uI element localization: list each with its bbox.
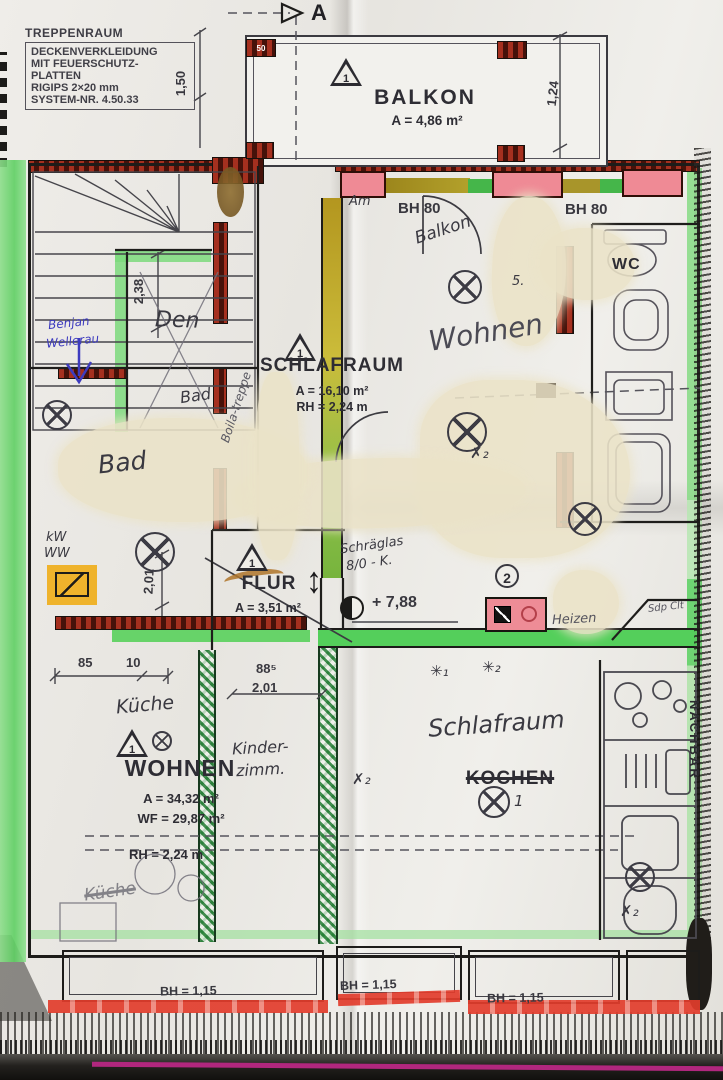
hand-asterisk-2: ✳₂ (482, 658, 501, 676)
crossed-circle-symbol (568, 502, 602, 536)
bottom-window-frame-4 (626, 950, 700, 1002)
room-label-kochen: KOCHEN (452, 768, 568, 790)
balcony-corner-number: 50 (257, 44, 266, 53)
circle-2-symbol: 2 (495, 564, 519, 588)
room-area-schlafraum: A = 16,10 m² (246, 384, 418, 398)
hand-kw: kW (46, 530, 66, 545)
room-rh-wohnen: RH = 2,24 m (96, 847, 236, 862)
level-value: + 7,88 (372, 594, 417, 612)
wall-hatch-mid-left (55, 616, 307, 630)
window-top-3 (622, 169, 683, 197)
partition-wall-kinder-right (318, 648, 338, 944)
kitchen-appliances-drawing (600, 670, 700, 942)
sill-green-2 (600, 179, 622, 193)
hand-heizen: Heizen (552, 611, 597, 628)
meter-box-symbol (55, 572, 89, 597)
room-rh-schlafraum: RH = 2,24 m (246, 400, 418, 414)
crossed-circle-symbol (478, 786, 510, 818)
dim-124: 1,24 (544, 80, 562, 107)
crossed-circle-symbol (42, 400, 72, 430)
spec-note-line: MIT FEUERSCHUTZ- (31, 58, 189, 70)
hand-am: Am (349, 194, 371, 209)
updown-arrow-symbol: ↕ (306, 559, 322, 602)
dim-10: 10 (126, 655, 140, 670)
sill-olive-1 (386, 178, 470, 193)
sill-olive-2 (563, 179, 601, 193)
dim-885: 88⁵ (256, 661, 277, 676)
hand-mark-one: 1 (514, 792, 524, 810)
triangle-number: 1 (236, 558, 268, 570)
room-label-balkon: BALKON (345, 86, 505, 110)
room-label-schlafraum: SCHLAFRAUM (246, 355, 418, 377)
torn-edge-left (0, 52, 7, 167)
neighbor-label-vertical: NACHBAR (687, 700, 702, 780)
heater-square-icon (494, 606, 511, 623)
hand-x2-c: ✗₂ (620, 902, 639, 920)
triangle-symbol: 1 (116, 729, 148, 757)
room-area-wohnen: A = 34,32 m² (106, 791, 256, 806)
crossed-circle-symbol (448, 270, 482, 304)
hand-x2-b: ✗₂ (352, 770, 371, 788)
dim-bh115-2: BH = 1,15 (340, 977, 397, 993)
spec-note-title: TREPPENRAUM (25, 26, 195, 40)
dim-bh115-1: BH = 1,15 (160, 984, 217, 999)
dim-85: 85 (78, 655, 92, 670)
crossed-circle-symbol (135, 532, 175, 572)
level-marker-symbol (340, 596, 364, 620)
crossed-circle-symbol (625, 862, 655, 892)
triangle-symbol: 1 (236, 543, 268, 571)
dim-238: 2,38 (131, 279, 146, 304)
crossed-circle-symbol (152, 731, 172, 751)
room-label-flur: FLUR (226, 573, 312, 595)
hand-mark-five: 5. (512, 274, 524, 289)
spec-note-box: DECKENVERKLEIDUNG MIT FEUERSCHUTZ- PLATT… (25, 42, 195, 110)
hand-kinderzimmer-1: Kinder- (232, 737, 289, 759)
triangle-symbol: 1 (330, 58, 362, 86)
room-label-wohnen: WOHNEN (102, 755, 258, 782)
hand-asterisk-1: ✳₁ (430, 662, 449, 680)
hand-bad-big: Bad (97, 446, 148, 480)
spec-note: TREPPENRAUM DECKENVERKLEIDUNG MIT FEUERS… (25, 26, 195, 110)
room-wf-wohnen: WF = 29,87 m² (106, 811, 256, 826)
dim-201-vertical: 2,01 (141, 568, 157, 594)
dim-bh115-3: BH = 1,15 (487, 991, 544, 1006)
hand-den: Den (155, 307, 200, 334)
stain-brown (217, 167, 244, 217)
triangle-number: 1 (330, 73, 362, 85)
hand-ww: WW (44, 546, 70, 561)
circle-2-number: 2 (503, 570, 511, 586)
heater-circle-icon (521, 606, 537, 622)
spec-note-line: DECKENVERKLEIDUNG (31, 46, 189, 58)
spec-note-line: RIGIPS 2×20 mm (31, 82, 189, 94)
balcony-corner-tl: 50 (246, 39, 276, 57)
dim-bh80-right: BH 80 (565, 201, 608, 218)
dim-201: 2,01 (252, 680, 277, 695)
room-area-flur: A = 3,51 m² (218, 601, 318, 615)
hand-kinderzimmer-2: zimm. (236, 759, 286, 781)
section-marker-label: A (311, 0, 327, 26)
spec-note-line: PLATTEN (31, 70, 189, 82)
sill-green-1 (468, 179, 492, 193)
balcony-corner-bl (246, 142, 274, 159)
spec-note-line: SYSTEM-NR. 4.50.33 (31, 94, 189, 106)
sill-red-1 (48, 1000, 328, 1013)
balcony-corner-tr (497, 41, 527, 59)
hand-x2-a: ✗₂ (470, 444, 489, 462)
dim-150: 1,50 (173, 71, 188, 96)
balcony-corner-br (497, 145, 525, 162)
dim-bh80-left: BH 80 (398, 200, 441, 217)
room-label-wc: WC (612, 256, 641, 274)
highlight-wall-left (0, 160, 26, 962)
room-area-balkon: A = 4,86 m² (352, 113, 502, 128)
window-top-2 (492, 171, 563, 198)
floorplan-scan: TREPPENRAUM DECKENVERKLEIDUNG MIT FEUERS… (0, 0, 723, 1080)
